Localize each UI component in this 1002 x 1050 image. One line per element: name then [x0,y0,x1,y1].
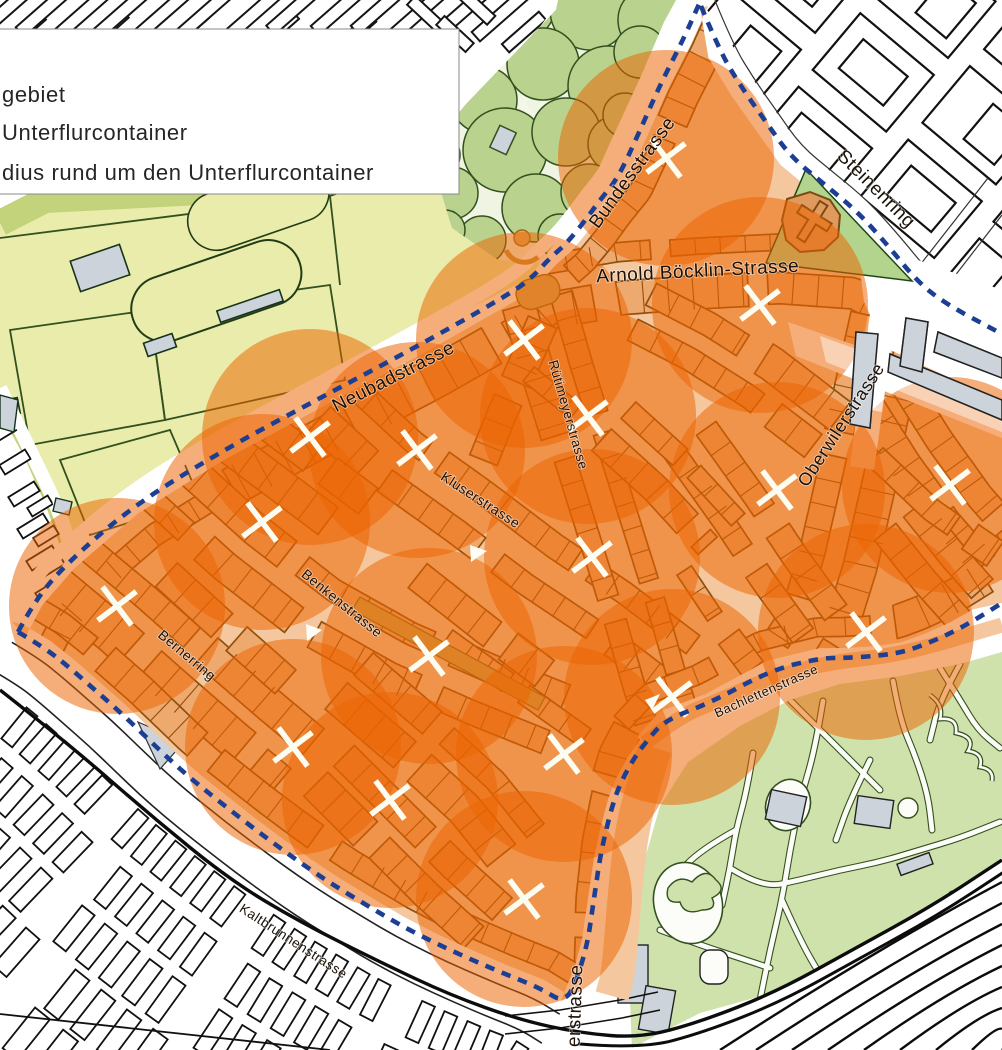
svg-text:dius rund um den Unterflurcont: dius rund um den Unterflurcontainer [2,160,374,185]
svg-text:Unterflurcontainer: Unterflurcontainer [2,120,188,145]
svg-text:gebiet: gebiet [2,82,66,107]
svg-text:erstrasse: erstrasse [564,964,588,1047]
